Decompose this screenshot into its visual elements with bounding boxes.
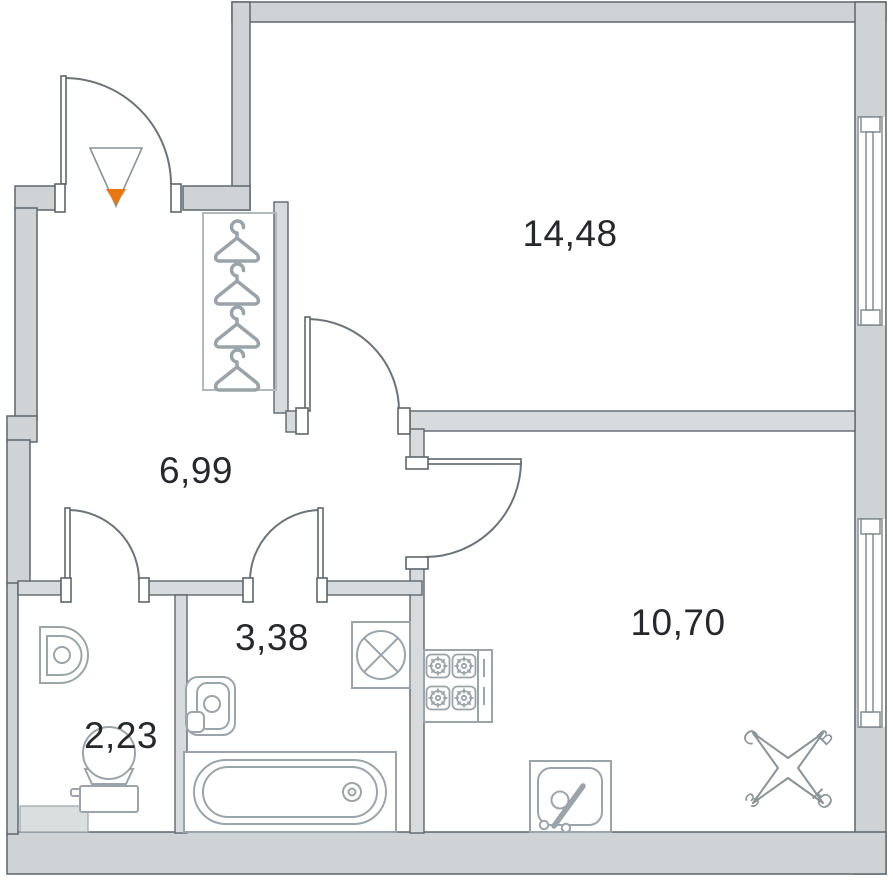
wc-door: [61, 508, 149, 602]
window-sash: [866, 132, 873, 310]
faucet-knob: [540, 821, 548, 829]
sink-drain: [204, 696, 220, 712]
compass-rose: С В З Ю: [737, 725, 838, 815]
door-post: [139, 578, 149, 602]
wc-sink-drain: [54, 647, 70, 663]
wall-entry-right: [183, 186, 250, 210]
window-kitchen: [857, 519, 885, 727]
wall-column-entry: [232, 2, 250, 210]
floor-plan: С В З Ю 14,48 6,99 3,38 2,23 10,70: [0, 0, 893, 880]
window-bedroom: [857, 117, 885, 325]
wall-bottom: [7, 832, 886, 874]
entrance-marker: [90, 148, 142, 206]
window-cap-bottom: [861, 310, 880, 325]
door-swing-arc: [69, 510, 139, 581]
compass-east: В: [813, 725, 838, 750]
door-post: [317, 578, 327, 602]
wc-sink: [40, 627, 88, 683]
area-label-hallway: 6,99: [159, 450, 233, 491]
window-sash: [866, 534, 873, 712]
compass-star-icon: [753, 733, 823, 803]
hanger-icon: [216, 264, 259, 304]
partition-bedroom-kitchen: [410, 411, 855, 431]
window-cap-top: [861, 117, 880, 132]
door-swing-arc: [250, 510, 320, 581]
window-cap-bottom: [861, 712, 880, 727]
door-post: [171, 184, 181, 212]
plumbing-duct: [20, 806, 88, 832]
faucet-knob: [562, 824, 570, 832]
closet: [203, 213, 276, 390]
bathroom-sink: [186, 677, 235, 735]
bedroom-door: [296, 317, 410, 434]
area-label-bathroom: 3,38: [235, 617, 309, 658]
compass-north: С: [737, 725, 763, 751]
area-label-wc: 2,23: [84, 715, 158, 756]
floor-plan-canvas: С В З Ю 14,48 6,99 3,38 2,23 10,70: [0, 0, 893, 880]
door-leaf: [65, 508, 70, 581]
kitchen-door: [406, 457, 521, 569]
area-label-kitchen: 10,70: [630, 602, 725, 643]
sink-shelf: [187, 712, 204, 732]
wall-entry-left: [15, 186, 57, 210]
stove: [424, 650, 492, 722]
partition-hall-bath-right: [327, 581, 422, 595]
entrance-arrow-tip-icon: [106, 189, 126, 205]
door-swing-arc: [309, 319, 399, 411]
door-leaf: [427, 459, 521, 464]
wall-left-step: [7, 416, 37, 442]
door-leaf: [61, 76, 66, 184]
wall-left-mid: [7, 440, 30, 585]
partition-hall-wc-mid: [148, 581, 244, 595]
door-post: [61, 578, 71, 602]
kitchen-sink: [530, 761, 611, 832]
door-post: [243, 578, 253, 602]
hanger-icon: [216, 221, 259, 261]
wall-top: [232, 2, 886, 22]
door-post: [398, 408, 410, 434]
partition-hall-wc-left: [18, 581, 61, 595]
window-cap-top: [861, 519, 880, 534]
door-post: [406, 557, 428, 569]
door-post: [55, 184, 65, 212]
door-leaf: [318, 508, 323, 581]
washing-machine: [352, 622, 410, 688]
bathtub: [184, 752, 396, 832]
door-swing-arc: [425, 461, 521, 557]
hanger-icon: [216, 350, 259, 390]
area-label-bedroom: 14,48: [522, 213, 617, 254]
door-post: [296, 408, 308, 434]
door-post: [406, 457, 428, 469]
toilet-tank: [80, 786, 138, 812]
door-leaf: [305, 317, 310, 411]
wall-left-lower: [7, 583, 18, 834]
bathtub-outline: [184, 752, 396, 832]
hanger-icon: [216, 307, 259, 347]
bathroom-door: [243, 508, 327, 602]
partition-bath-kitchen: [410, 567, 424, 833]
wall-left-upper: [15, 208, 37, 420]
